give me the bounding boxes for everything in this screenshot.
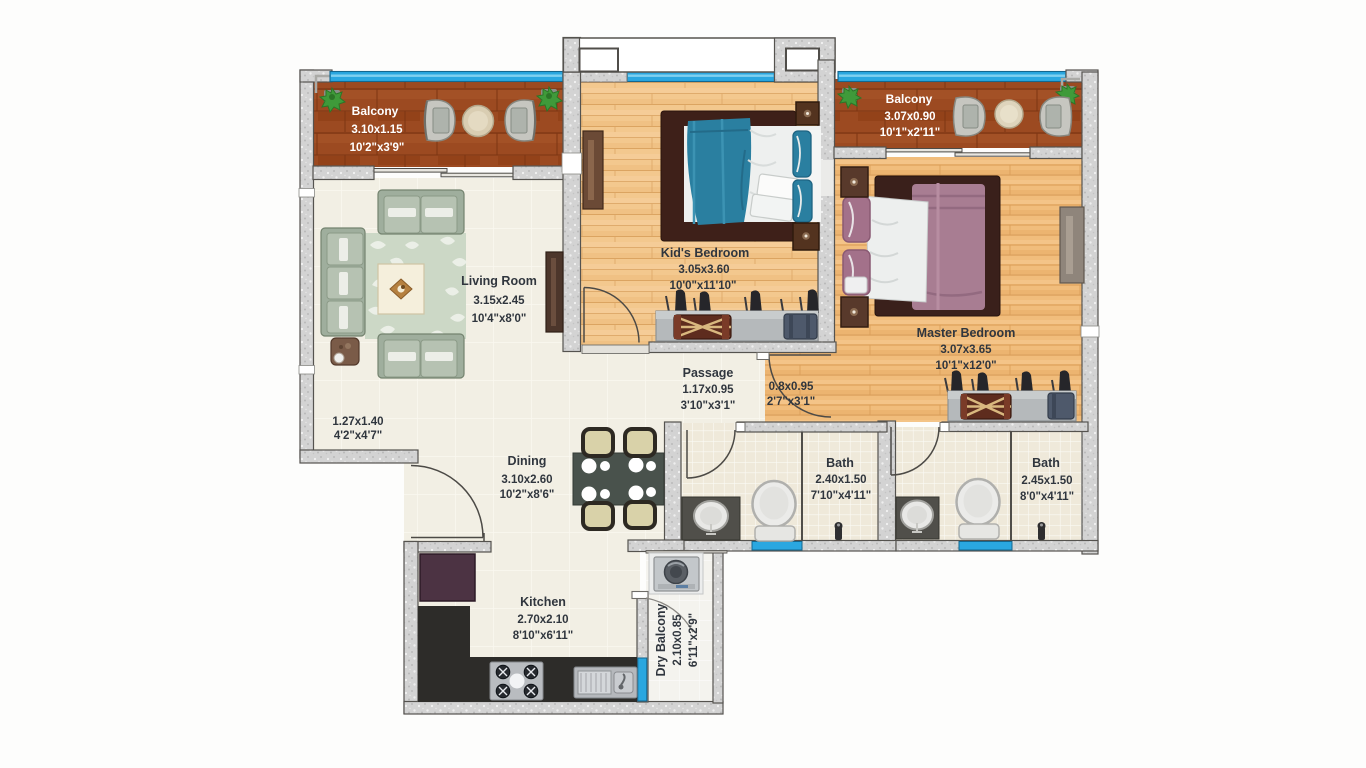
svg-text:8'0"x4'11": 8'0"x4'11" <box>1020 491 1074 503</box>
svg-text:Living Room: Living Room <box>461 274 537 288</box>
svg-text:10'1"x12'0": 10'1"x12'0" <box>935 360 996 372</box>
svg-text:3.07x3.65: 3.07x3.65 <box>940 344 992 356</box>
svg-text:3.10x1.15: 3.10x1.15 <box>351 124 403 136</box>
svg-text:Kid's Bedroom: Kid's Bedroom <box>661 246 749 260</box>
svg-text:Balcony: Balcony <box>886 92 933 106</box>
svg-text:3'10"x3'1": 3'10"x3'1" <box>681 400 736 412</box>
svg-text:Dining: Dining <box>508 454 547 468</box>
svg-text:2.40x1.50: 2.40x1.50 <box>815 474 866 486</box>
svg-text:10'2"x3'9": 10'2"x3'9" <box>350 142 405 154</box>
svg-text:Balcony: Balcony <box>352 104 399 118</box>
svg-text:3.15x2.45: 3.15x2.45 <box>473 295 525 307</box>
svg-text:3.05x3.60: 3.05x3.60 <box>678 264 729 276</box>
svg-text:6'11"x2'9": 6'11"x2'9" <box>688 613 700 667</box>
svg-text:Master Bedroom: Master Bedroom <box>917 326 1016 340</box>
svg-text:Kitchen: Kitchen <box>520 595 566 609</box>
svg-text:10'0"x11'10": 10'0"x11'10" <box>670 280 737 292</box>
svg-text:1.17x0.95: 1.17x0.95 <box>682 384 734 396</box>
svg-text:10'1"x2'11": 10'1"x2'11" <box>880 127 941 139</box>
svg-text:Bath: Bath <box>1032 456 1060 470</box>
svg-text:10'4"x8'0": 10'4"x8'0" <box>472 313 527 325</box>
svg-text:7'10"x4'11": 7'10"x4'11" <box>811 490 872 502</box>
svg-text:10'2"x8'6": 10'2"x8'6" <box>500 489 555 501</box>
svg-text:4'2"x4'7": 4'2"x4'7" <box>334 430 382 442</box>
svg-text:0.8x0.95: 0.8x0.95 <box>769 381 814 393</box>
svg-text:2.10x0.85: 2.10x0.85 <box>672 614 684 666</box>
svg-text:3.07x0.90: 3.07x0.90 <box>884 111 935 123</box>
svg-text:3.10x2.60: 3.10x2.60 <box>501 474 552 486</box>
svg-text:2.45x1.50: 2.45x1.50 <box>1021 475 1072 487</box>
svg-text:Dry Balcony: Dry Balcony <box>654 603 668 676</box>
svg-text:Bath: Bath <box>826 456 854 470</box>
svg-text:Passage: Passage <box>683 366 734 380</box>
svg-text:2'7"x3'1": 2'7"x3'1" <box>767 396 815 408</box>
svg-text:1.27x1.40: 1.27x1.40 <box>332 416 383 428</box>
svg-text:2.70x2.10: 2.70x2.10 <box>517 614 568 626</box>
svg-text:8'10"x6'11": 8'10"x6'11" <box>513 630 574 642</box>
